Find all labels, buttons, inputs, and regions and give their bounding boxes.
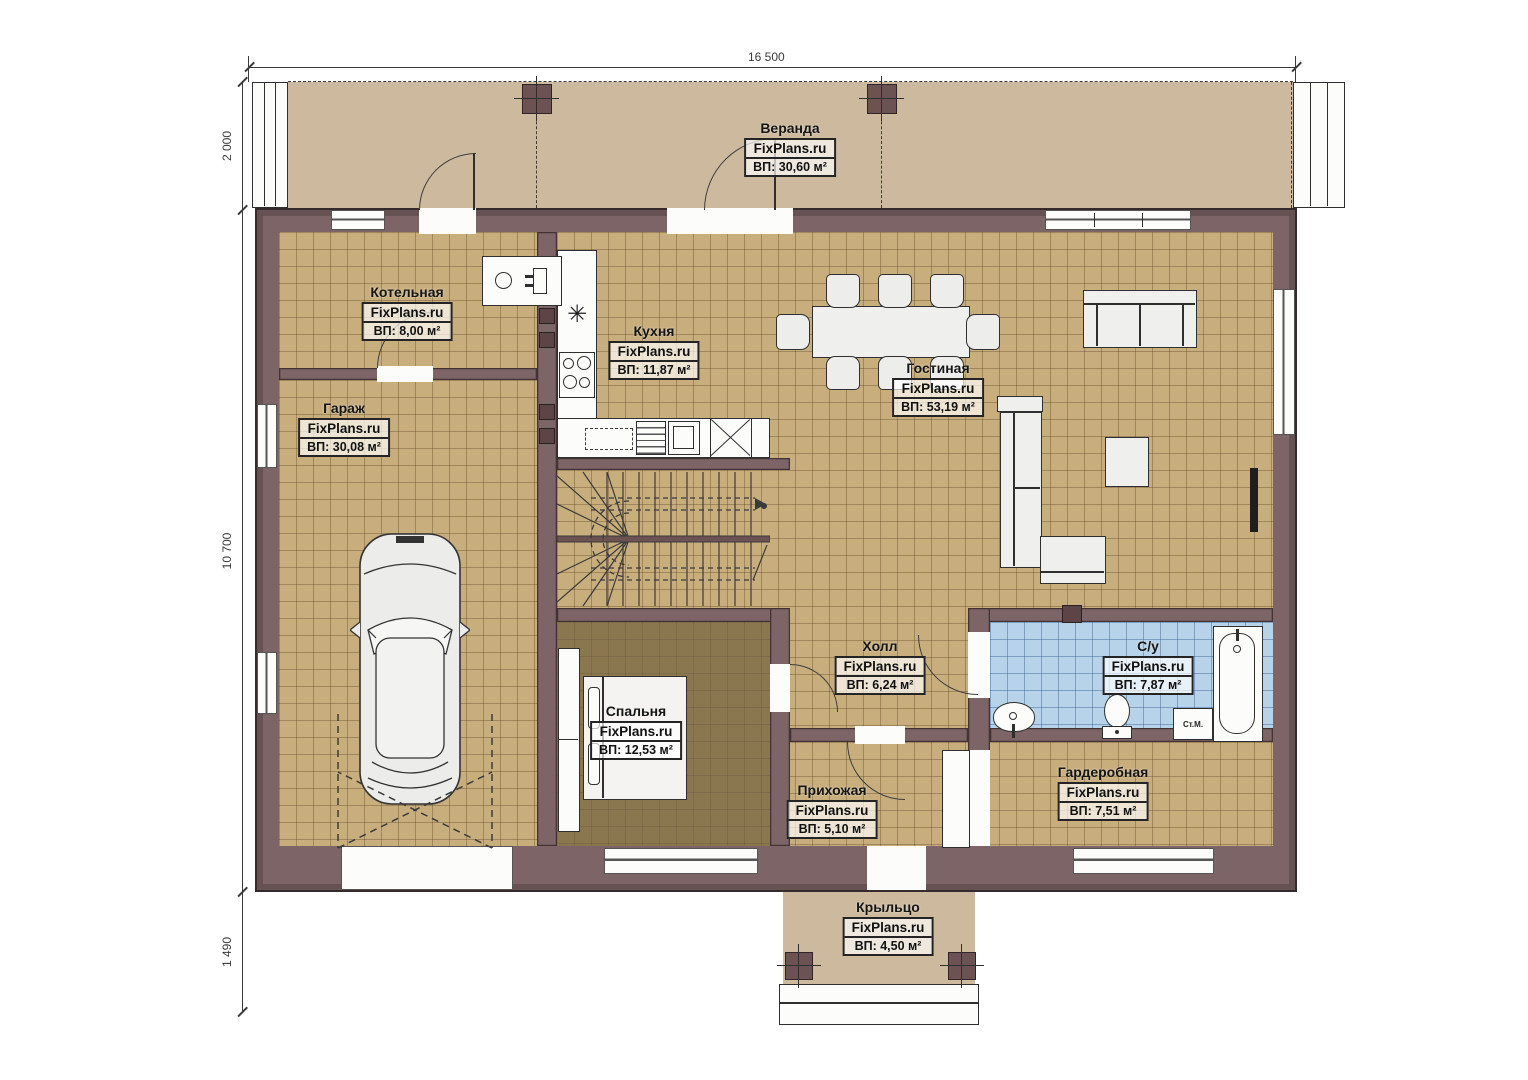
- room-label-veranda: Веранда FixPlans.ru ВП: 30,60 м²: [744, 120, 836, 177]
- porch-step: [779, 984, 979, 1003]
- bathtub-drain: [1233, 645, 1241, 653]
- window-mullion: [1094, 213, 1095, 227]
- window-bedroom: [604, 848, 758, 874]
- room-label-hall: Холл FixPlans.ru ВП: 6,24 м²: [835, 638, 926, 695]
- room-info-box: FixPlans.ru ВП: 8,00 м²: [362, 302, 453, 341]
- sink-tap: [1012, 724, 1015, 738]
- veranda-steps-left: [252, 82, 288, 208]
- room-name: Прихожая: [787, 782, 878, 798]
- toilet-button: [1115, 730, 1119, 734]
- corner-sofa-vertical: [1000, 412, 1042, 568]
- dining-chair: [776, 314, 810, 350]
- sofa-divider: [1139, 303, 1141, 346]
- sofa-back-line: [1013, 413, 1015, 566]
- room-label-bathroom: С/у FixPlans.ru ВП: 7,87 м²: [1103, 638, 1194, 695]
- burner: [563, 375, 577, 389]
- window-living-right: [1273, 289, 1295, 435]
- sofa-back-line: [1041, 571, 1104, 573]
- room-name: Крыльцо: [843, 899, 934, 915]
- room-info-box: FixPlans.ru ВП: 12,53 м²: [590, 721, 682, 760]
- wall-garage-kitchen: [537, 232, 557, 846]
- dining-chair: [826, 274, 860, 308]
- wall-kitchen-stairs: [557, 458, 790, 470]
- room-info-box: FixPlans.ru ВП: 5,10 м²: [787, 800, 878, 839]
- room-label-garage: Гараж FixPlans.ru ВП: 30,08 м²: [298, 400, 390, 457]
- veranda-dashed-edge-right: [1291, 82, 1292, 208]
- door-opening-bedroom: [770, 664, 790, 712]
- dining-chair: [878, 274, 912, 308]
- wall-bedroom-top: [557, 608, 790, 622]
- room-name: Холл: [835, 638, 926, 654]
- dining-chair: [826, 356, 860, 390]
- burner: [577, 356, 591, 370]
- room-watermark: FixPlans.ru: [300, 420, 388, 437]
- dimension-house-depth: 10 700: [220, 526, 234, 576]
- room-watermark: FixPlans.ru: [610, 343, 697, 360]
- room-name: Котельная: [362, 284, 453, 300]
- room-label-wardrobe: Гардеробная FixPlans.ru ВП: 7,51 м²: [1058, 764, 1149, 821]
- bedroom-cabinet: [558, 648, 580, 832]
- dining-chair: [930, 274, 964, 308]
- washing-machine: Ст.М.: [1173, 708, 1213, 740]
- sofa-armrest: [1096, 303, 1098, 346]
- door-leaf: [473, 153, 475, 210]
- fridge-crossed: [710, 418, 752, 458]
- room-name: Веранда: [744, 120, 836, 136]
- room-area: ВП: 11,87 м²: [610, 360, 697, 378]
- boiler-wall-tab: [533, 268, 547, 294]
- tv: [1250, 468, 1258, 532]
- room-info-box: FixPlans.ru ВП: 53,19 м²: [892, 378, 984, 417]
- porch-post: [948, 952, 976, 980]
- window-living-top: [1045, 210, 1191, 230]
- corner-sofa-end-table: [997, 396, 1043, 412]
- room-label-porch: Крыльцо FixPlans.ru ВП: 4,50 м²: [843, 899, 934, 956]
- duct-square: [539, 404, 555, 420]
- room-label-bedroom: Спальня FixPlans.ru ВП: 12,53 м²: [590, 703, 682, 760]
- veranda-dashed-edge-top: [288, 81, 1293, 82]
- veranda-post: [522, 84, 552, 114]
- dimension-width-total: 16 500: [748, 50, 785, 64]
- window-mullion: [1142, 213, 1143, 227]
- dimension-veranda-depth: 2 000: [220, 124, 234, 168]
- window-boiler: [331, 210, 385, 230]
- appliance-box: [668, 421, 700, 455]
- step-line: [1327, 83, 1328, 206]
- vent-square: [1062, 605, 1082, 623]
- dining-table: [812, 306, 970, 358]
- veranda-post: [867, 84, 897, 114]
- sofa: [1083, 290, 1197, 348]
- burner: [563, 358, 574, 369]
- post-axis: [798, 944, 799, 988]
- bathtub: [1213, 626, 1263, 742]
- room-area: ВП: 53,19 м²: [894, 397, 982, 415]
- dining-chair: [966, 314, 1000, 350]
- room-name: Гостиная: [892, 360, 984, 376]
- porch-step: [779, 1003, 979, 1025]
- corner-sofa-horizontal: [1040, 536, 1106, 584]
- dimension-line-top: [249, 67, 1297, 68]
- stove: [559, 352, 595, 398]
- dimension-line-left: [242, 82, 243, 1012]
- room-label-kitchen: Кухня FixPlans.ru ВП: 11,87 м²: [608, 323, 699, 380]
- toilet: [1102, 694, 1132, 742]
- room-name: Кухня: [608, 323, 699, 339]
- veranda-steps-right: [1293, 82, 1345, 208]
- room-label-living: Гостиная FixPlans.ru ВП: 53,19 м²: [892, 360, 984, 417]
- sink-drain: [1009, 712, 1017, 720]
- room-area: ВП: 7,87 м²: [1105, 675, 1192, 693]
- floor-plan: 16 500 2 000 10 700 1 490: [0, 0, 1528, 1080]
- room-watermark: FixPlans.ru: [1105, 658, 1192, 675]
- room-area: ВП: 4,50 м²: [845, 936, 932, 954]
- washing-machine-label: Ст.М.: [1183, 720, 1203, 729]
- room-info-box: FixPlans.ru ВП: 11,87 м²: [608, 341, 699, 380]
- room-info-box: FixPlans.ru ВП: 30,08 м²: [298, 418, 390, 457]
- room-info-box: FixPlans.ru ВП: 7,51 м²: [1058, 782, 1149, 821]
- door-opening-kitchen-veranda: [667, 208, 793, 234]
- room-area: ВП: 8,00 м²: [364, 321, 451, 339]
- porch-post: [785, 952, 813, 980]
- appliance-inner: [673, 426, 694, 449]
- appliance-shelved: [636, 421, 666, 455]
- wall-bathroom-top: [968, 608, 1273, 622]
- step-line: [1310, 83, 1311, 206]
- boiler-unit: [482, 256, 562, 306]
- room-name: Спальня: [590, 703, 682, 719]
- burner: [579, 377, 590, 388]
- room-watermark: FixPlans.ru: [789, 802, 876, 819]
- window-garage-left-1: [257, 404, 277, 468]
- post-axis: [881, 76, 882, 121]
- post-axis: [961, 944, 962, 988]
- room-area: ВП: 5,10 м²: [789, 819, 876, 837]
- bathtub-tap: [1236, 629, 1239, 641]
- room-name: С/у: [1103, 638, 1194, 654]
- wardrobe-door-leaf: [942, 750, 970, 848]
- door-opening-garage-boiler: [377, 366, 433, 382]
- room-watermark: FixPlans.ru: [845, 919, 932, 936]
- boiler-dial: [495, 272, 512, 289]
- sink-symbol: ✳: [560, 300, 594, 330]
- post-axis: [536, 76, 537, 121]
- step-line: [264, 83, 265, 206]
- room-name: Гардеробная: [1058, 764, 1149, 780]
- room-area: ВП: 7,51 м²: [1060, 801, 1147, 819]
- room-watermark: FixPlans.ru: [837, 658, 924, 675]
- toilet-bowl: [1104, 694, 1130, 728]
- step-line: [275, 83, 276, 206]
- room-watermark: FixPlans.ru: [364, 304, 451, 321]
- door-opening-boiler-veranda: [419, 208, 476, 234]
- duct-square: [539, 308, 555, 324]
- duct-square: [539, 428, 555, 444]
- room-watermark: FixPlans.ru: [746, 140, 834, 157]
- room-area: ВП: 30,60 м²: [746, 157, 834, 175]
- garage-door-swing: [332, 714, 498, 856]
- bathroom-sink: [993, 702, 1037, 742]
- room-area: ВП: 12,53 м²: [592, 740, 680, 758]
- staircase: [557, 470, 770, 608]
- room-name: Гараж: [298, 400, 390, 416]
- sofa-divider: [1013, 487, 1040, 489]
- door-opening-wardrobe: [968, 750, 990, 846]
- room-watermark: FixPlans.ru: [894, 380, 982, 397]
- side-table: [1105, 437, 1149, 487]
- room-label-boiler: Котельная FixPlans.ru ВП: 8,00 м²: [362, 284, 453, 341]
- dimension-porch-depth: 1 490: [220, 930, 234, 974]
- room-label-entry: Прихожая FixPlans.ru ВП: 5,10 м²: [787, 782, 878, 839]
- room-info-box: FixPlans.ru ВП: 7,87 м²: [1103, 656, 1194, 695]
- room-info-box: FixPlans.ru ВП: 4,50 м²: [843, 917, 934, 956]
- room-info-box: FixPlans.ru ВП: 30,60 м²: [744, 138, 836, 177]
- room-area: ВП: 30,08 м²: [300, 437, 388, 455]
- entry-door-opening: [867, 846, 926, 890]
- room-watermark: FixPlans.ru: [592, 723, 680, 740]
- window-garage-left-2: [257, 652, 277, 714]
- cabinet-divider: [559, 739, 578, 740]
- duct-square: [539, 332, 555, 348]
- room-info-box: FixPlans.ru ВП: 6,24 м²: [835, 656, 926, 695]
- room-watermark: FixPlans.ru: [1060, 784, 1147, 801]
- window-wardrobe: [1073, 848, 1214, 874]
- dishwasher-dashed: [585, 428, 633, 450]
- sofa-armrest: [1182, 303, 1184, 346]
- room-area: ВП: 6,24 м²: [837, 675, 924, 693]
